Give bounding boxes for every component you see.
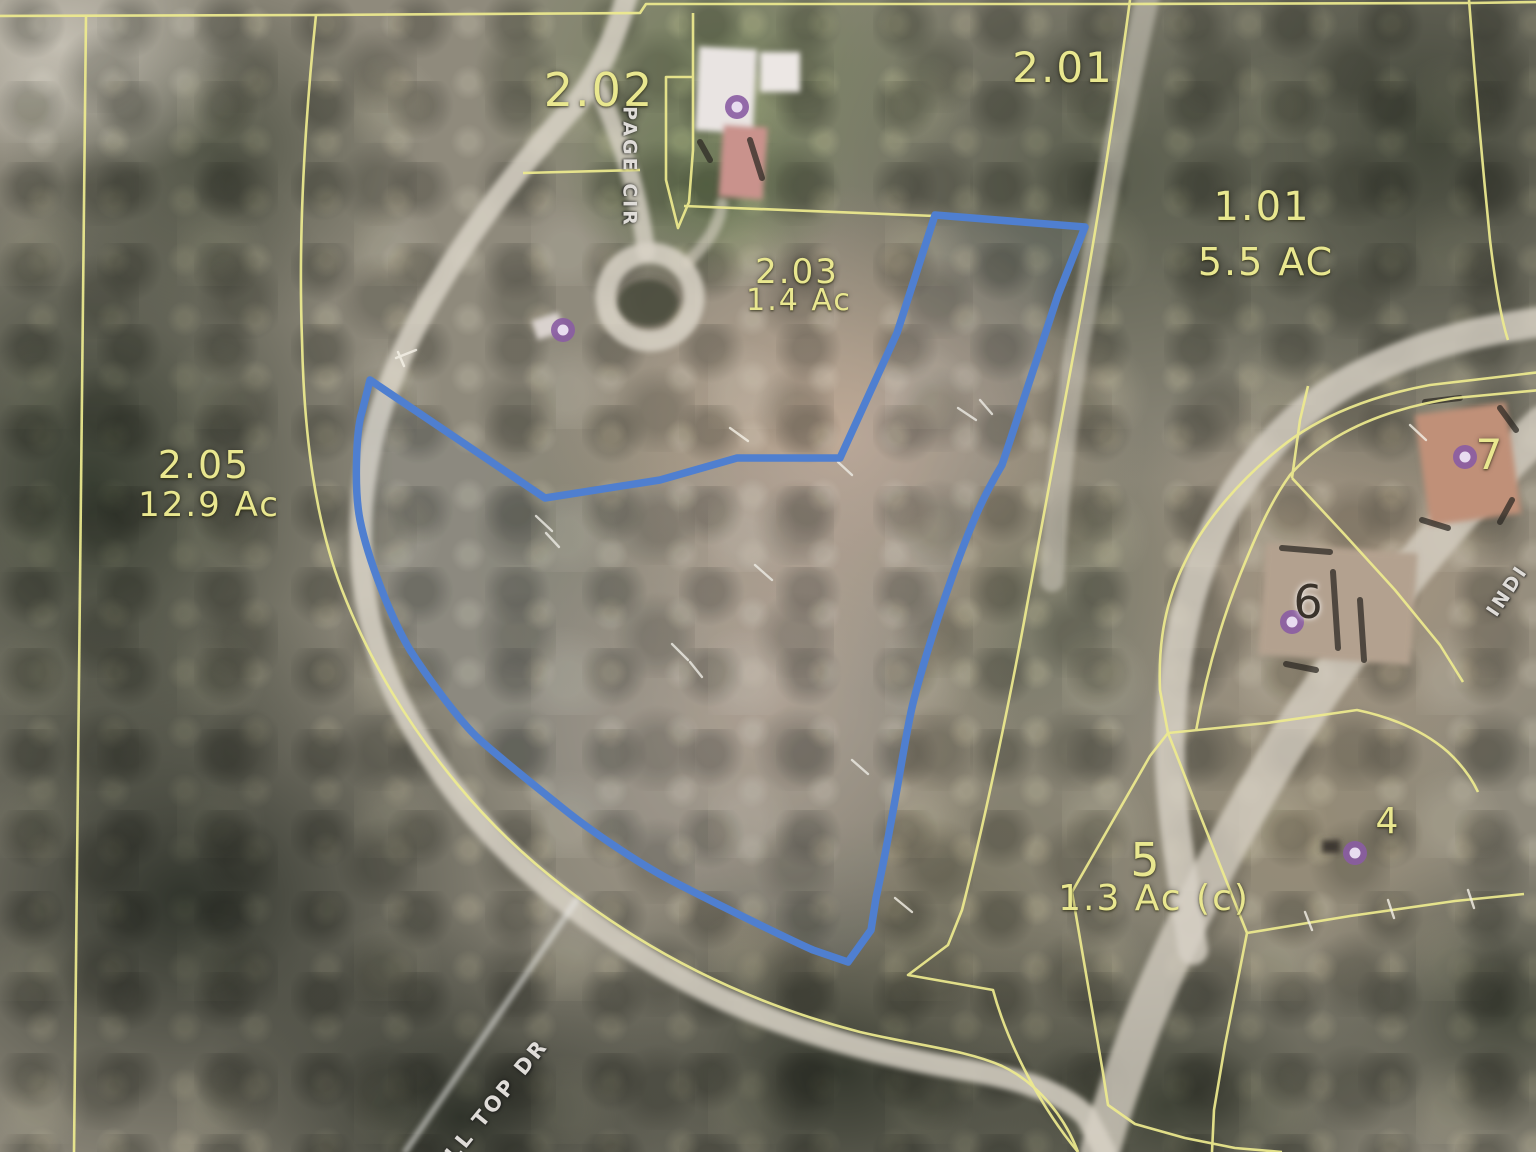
parcel-area-5: 1.3 Ac (c) (1058, 881, 1250, 917)
parcel-area-1-01: 5.5 AC (1198, 243, 1334, 281)
house-page-cir-wing (719, 125, 768, 200)
boundary-upper-right-vertical (1469, 0, 1508, 340)
road-label-page-cir: PAGE CIR (620, 106, 639, 228)
boundary-top-line (0, 2, 1536, 16)
house-marker[interactable] (1343, 841, 1367, 865)
house-marker[interactable] (551, 318, 575, 342)
parcel-label-6: 6 (1293, 579, 1324, 625)
parcel-label-5: 5 (1130, 837, 1161, 883)
map-canvas[interactable]: 2.02 2.01 1.01 5.5 AC 2.03 1.4 Ac 2.05 1… (0, 0, 1536, 1152)
boundary-west-line (74, 15, 86, 1152)
house-page-cir-annex (760, 52, 800, 92)
driveway (688, 203, 722, 262)
parcel-label-2-01: 2.01 (1012, 47, 1114, 89)
parcel-label-4: 4 (1376, 804, 1401, 840)
house-marker[interactable] (725, 95, 749, 119)
boundary-lot45-tickline (1247, 894, 1524, 933)
house-marker[interactable] (1453, 445, 1477, 469)
house-page-cir (695, 47, 757, 134)
parcel-label-7: 7 (1476, 434, 1505, 476)
cul-de-sac-island (618, 280, 678, 326)
parcel-label-2-05: 2.05 (158, 446, 251, 484)
parcel-area-2-03: 1.4 Ac (746, 286, 852, 316)
pad-lot4 (1322, 840, 1340, 853)
boundary-flag-202 (666, 13, 693, 228)
parcel-area-2-05: 12.9 Ac (138, 488, 280, 522)
parcel-label-1-01: 1.01 (1213, 187, 1310, 227)
